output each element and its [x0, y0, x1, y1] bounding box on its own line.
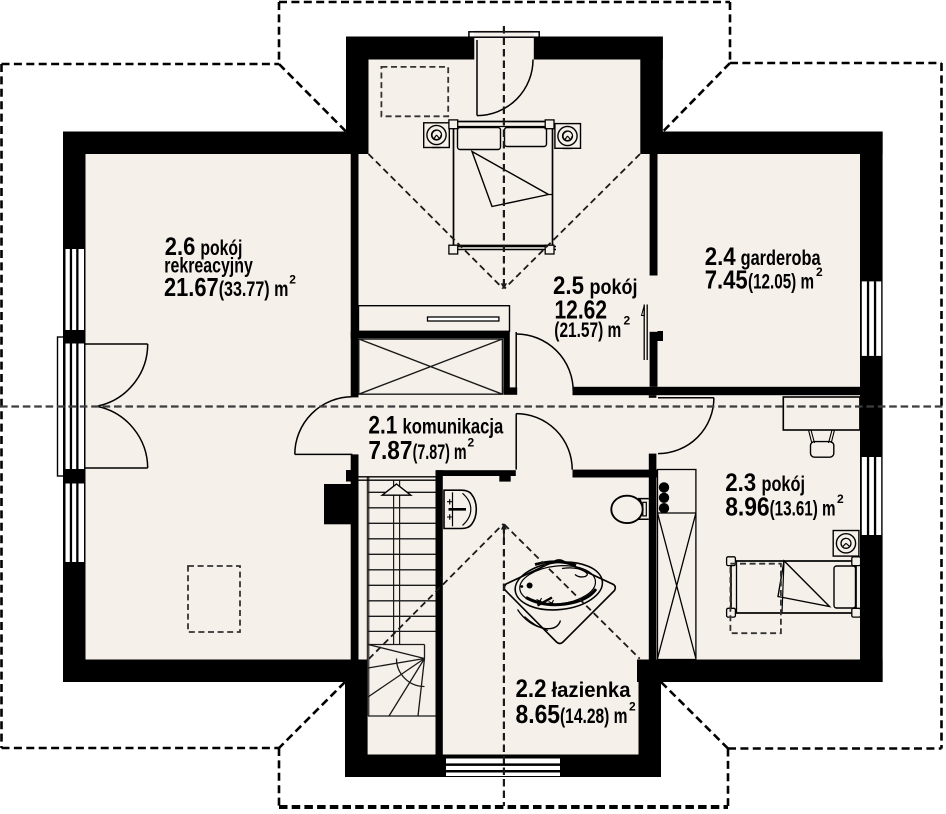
svg-text:21.67: 21.67: [164, 272, 219, 302]
svg-text:2: 2: [289, 273, 296, 287]
svg-text:7.87: 7.87: [368, 435, 412, 465]
svg-text:2: 2: [837, 492, 844, 506]
svg-text:(21.57) m: (21.57) m: [554, 319, 621, 342]
svg-text:łazienka: łazienka: [552, 679, 631, 702]
svg-text:2: 2: [629, 700, 636, 714]
svg-text:(12.05) m: (12.05) m: [748, 271, 814, 294]
svg-text:7.45: 7.45: [705, 265, 748, 295]
svg-text:komunikacja: komunikacja: [403, 416, 504, 439]
svg-text:2: 2: [624, 314, 631, 328]
svg-text:(14.28) m: (14.28) m: [560, 705, 628, 728]
svg-text:8.96: 8.96: [725, 492, 769, 522]
svg-text:(33.77) m: (33.77) m: [219, 278, 289, 301]
svg-text:8.65: 8.65: [516, 699, 561, 729]
svg-text:(13.61) m: (13.61) m: [770, 498, 836, 521]
svg-text:2: 2: [816, 265, 823, 279]
svg-text:garderoba: garderoba: [741, 247, 821, 270]
svg-text:2: 2: [468, 436, 475, 450]
svg-text:(7.87) m: (7.87) m: [413, 441, 467, 464]
